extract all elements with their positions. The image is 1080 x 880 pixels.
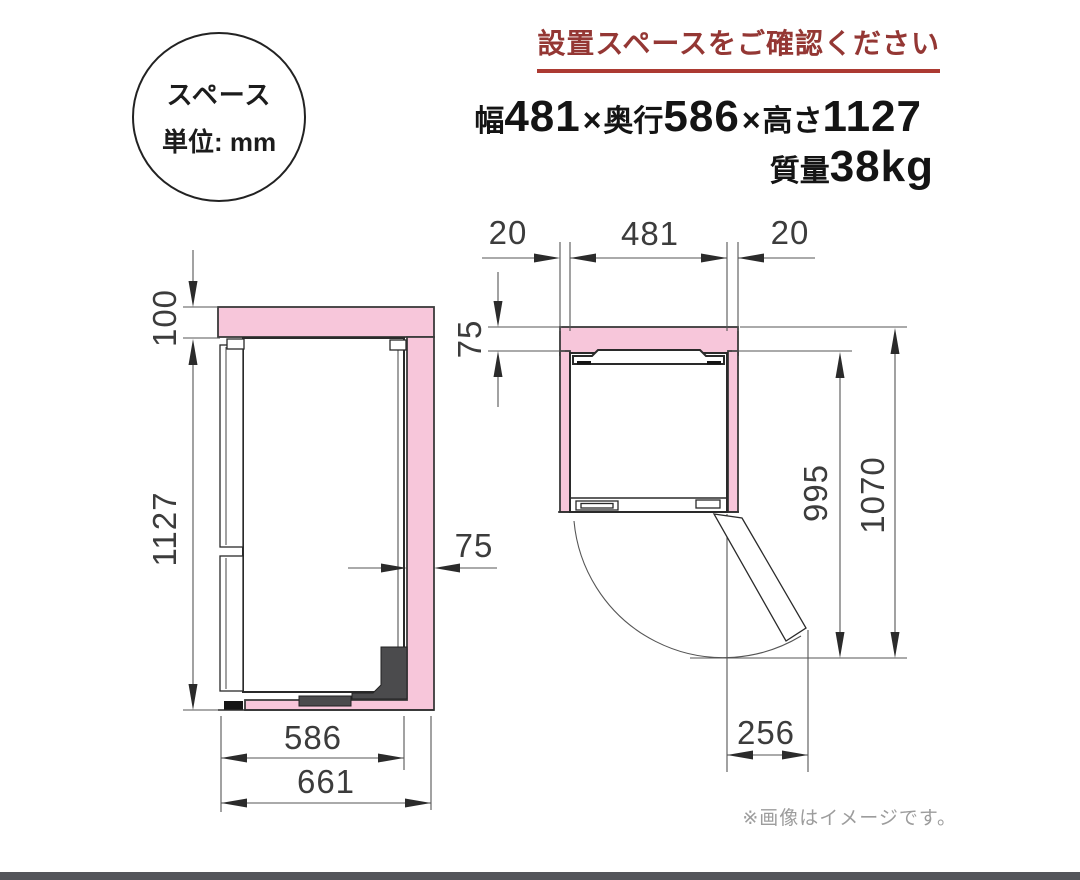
top-open-depth-label: 995 [799,438,833,548]
top-total-open-depth-label: 1070 [856,440,890,550]
installation-diagram [0,0,1080,880]
side-top-clearance-label: 100 [148,263,182,373]
top-left-clearance-label: 20 [453,216,563,250]
side-depth-label: 586 [258,721,368,755]
top-right-clearance-label: 20 [735,216,845,250]
side-height-label: 1127 [148,474,182,584]
side-back-clearance-label: 75 [419,529,529,563]
top-width-label: 481 [595,217,705,251]
top-view-drawing [482,242,907,772]
bottom-bar [0,872,1080,880]
top-door-swing-label: 256 [711,716,821,750]
side-total-depth-label: 661 [271,765,381,799]
top-back-clearance-label: 75 [453,284,487,394]
image-disclaimer: ※画像はイメージです。 [742,803,957,830]
